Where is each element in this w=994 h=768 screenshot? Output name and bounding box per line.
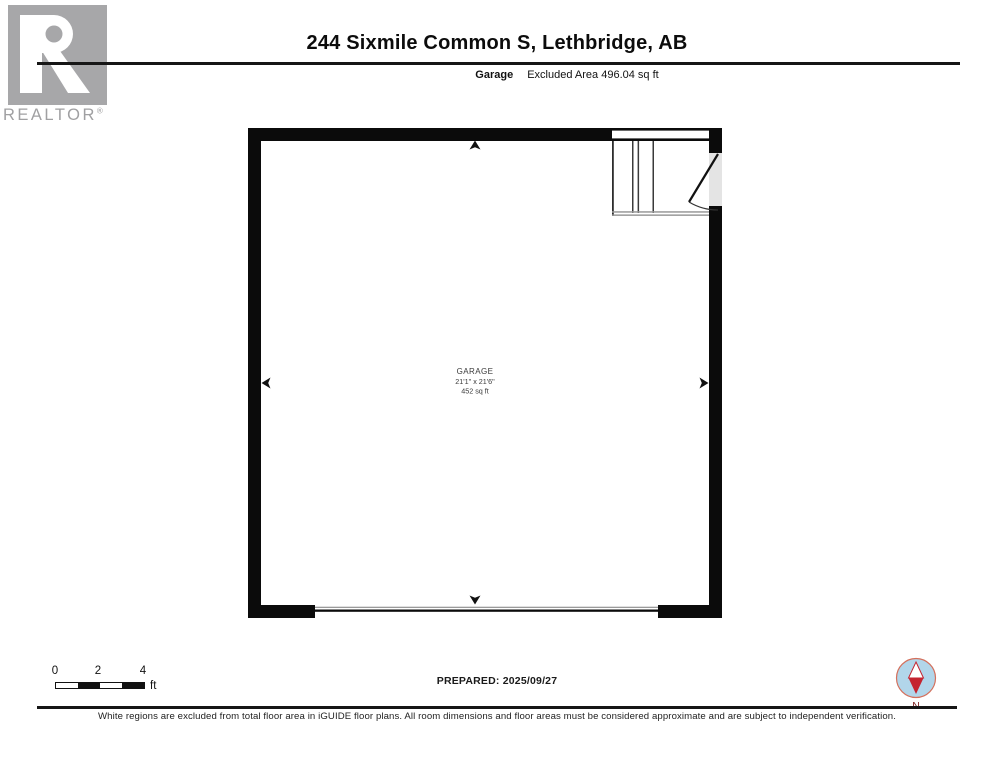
header-divider-line <box>37 62 960 65</box>
footer-divider-line <box>37 706 957 709</box>
stair-tread-line <box>638 141 640 213</box>
door-threshold <box>709 153 722 206</box>
stair-edge-line <box>612 211 709 213</box>
prepared-date: PREPARED: 2025/09/27 <box>0 675 994 687</box>
floor-plan-page: REALTOR® 244 Sixmile Common S, Lethbridg… <box>0 0 994 768</box>
floor-name-label: Garage <box>475 69 513 81</box>
room-dimensions: 21'1" x 21'6" <box>455 377 495 386</box>
room-name: GARAGE <box>457 367 494 376</box>
left-wall <box>248 128 261 618</box>
realtor-wordmark-text: REALTOR <box>3 106 97 124</box>
stair-edge-line <box>612 214 709 216</box>
right-wall-lower <box>709 206 722 618</box>
compass-icon: N <box>893 656 939 712</box>
stairwell-side-line <box>612 141 614 216</box>
excluded-area-text: Excluded Area 496.04 sq ft <box>527 69 658 81</box>
floor-plan-drawing: GARAGE 21'1" x 21'6" 452 sq ft <box>248 128 722 618</box>
right-wall-upper <box>709 128 722 153</box>
registered-trademark-symbol: ® <box>97 107 103 116</box>
stair-tread-line <box>632 141 634 213</box>
room-area: 452 sq ft <box>461 387 489 396</box>
page-title: 244 Sixmile Common S, Lethbridge, AB <box>0 32 994 55</box>
top-wall <box>248 128 612 141</box>
stairwell-inner-wall-line <box>612 138 709 141</box>
bottom-wall-left <box>248 605 315 618</box>
bottom-wall-right <box>658 605 722 618</box>
stair-tread-line <box>653 141 655 213</box>
disclaimer-text: White regions are excluded from total fl… <box>0 711 994 722</box>
realtor-wordmark: REALTOR® <box>3 106 103 125</box>
stairwell-outer-wall-line <box>612 128 709 131</box>
subtitle-row: Garage Excluded Area 496.04 sq ft <box>475 69 658 81</box>
realtor-logo <box>8 5 107 105</box>
